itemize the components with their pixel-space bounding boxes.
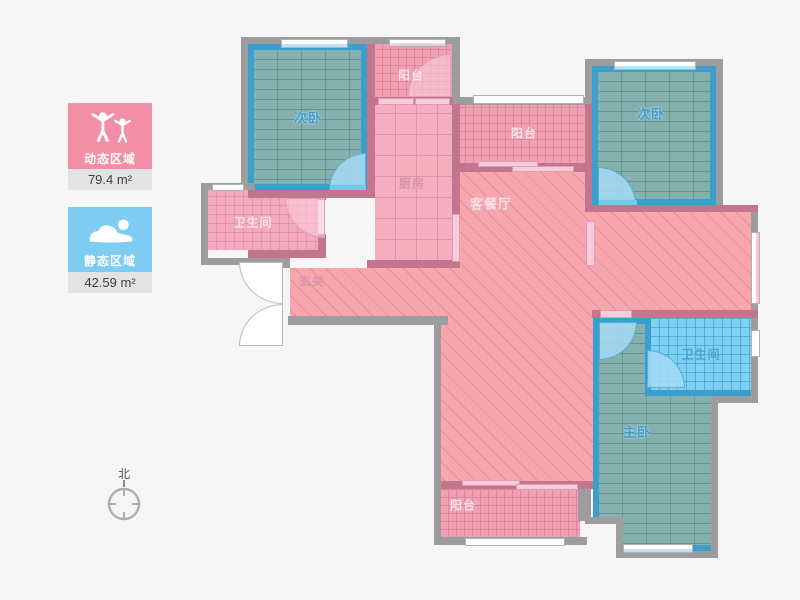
pass-through-window — [415, 98, 450, 105]
legend-dynamic-area[interactable]: 动态区域 — [68, 103, 152, 169]
window — [623, 544, 693, 553]
window — [751, 330, 760, 357]
wall — [248, 190, 374, 198]
wall — [241, 37, 248, 190]
door-leaf — [599, 200, 637, 205]
window — [389, 39, 446, 47]
door-leaf — [330, 185, 366, 190]
entry-door-arc — [239, 304, 283, 346]
room-label-bedroom-left: 次卧 — [294, 108, 322, 127]
window — [614, 61, 696, 70]
room-label-kitchen: 厨房 — [399, 175, 425, 192]
compass-north-label: 北 — [100, 468, 148, 480]
room-label-balcony-top: 阳台 — [398, 67, 424, 84]
compass-dial-icon — [102, 480, 146, 524]
wall — [367, 44, 375, 198]
window — [212, 184, 244, 191]
room-label-balcony-middle: 阳台 — [511, 125, 537, 142]
wall — [434, 316, 441, 544]
room-label-bathroom-left: 卫生间 — [233, 214, 272, 231]
wall — [452, 37, 460, 104]
room-label-bedroom-right: 次卧 — [637, 104, 665, 123]
room-label-master-bedroom: 主卧 — [623, 422, 651, 441]
wall — [201, 183, 208, 265]
wall — [578, 488, 591, 521]
legend-static-label: 静态区域 — [84, 252, 136, 269]
wall — [367, 260, 460, 268]
window — [465, 538, 565, 546]
pass-through-window — [378, 98, 414, 105]
room-label-bathroom-right: 卫生间 — [681, 346, 720, 363]
wall — [248, 250, 326, 258]
wall — [585, 205, 758, 212]
sliding-door — [516, 484, 578, 490]
building-notch — [593, 524, 616, 558]
window — [281, 39, 348, 48]
window — [473, 95, 584, 104]
wall — [288, 316, 448, 325]
room-label-hallway: 玄关 — [299, 273, 325, 290]
legend-static-area-value: 42.59 m² — [68, 272, 152, 293]
sliding-door — [512, 166, 574, 172]
wall — [711, 396, 718, 558]
static-area-text: 42.59 m² — [84, 275, 135, 290]
person-sleeping-icon — [83, 215, 137, 252]
compass: 北 — [100, 468, 148, 526]
dynamic-area-text: 79.4 m² — [88, 172, 132, 187]
room-label-living: 客餐厅 — [470, 194, 512, 213]
legend-dynamic-area-value: 79.4 m² — [68, 169, 152, 190]
window — [751, 232, 760, 304]
entry-door-arc — [239, 262, 283, 304]
radiator — [586, 221, 595, 266]
door-sill — [600, 310, 632, 318]
legend-static-area[interactable]: 静态区域 — [68, 207, 152, 272]
room-label-balcony-bottom: 阳台 — [450, 497, 476, 514]
door-opening — [452, 214, 460, 262]
sliding-door — [462, 480, 520, 486]
people-cheering-icon — [83, 111, 137, 150]
legend-dynamic-label: 动态区域 — [84, 150, 136, 167]
wall — [716, 59, 723, 212]
wall — [585, 104, 592, 205]
